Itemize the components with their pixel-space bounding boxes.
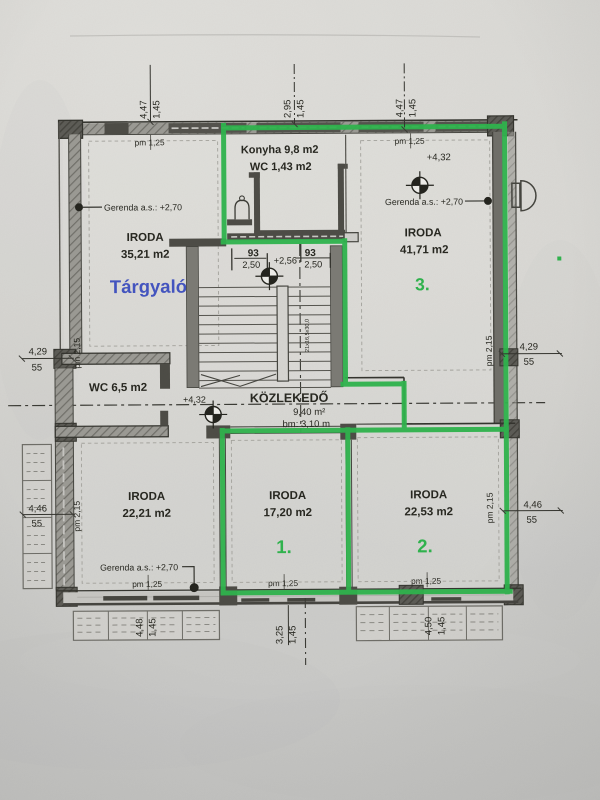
svg-text:3,25: 3,25 [274,626,285,645]
svg-text:55: 55 [32,362,43,373]
svg-text:pm 2,15: pm 2,15 [485,492,495,523]
svg-text:pm 1,25: pm 1,25 [268,578,298,588]
svg-text:WC 6,5 m2: WC 6,5 m2 [89,382,147,394]
svg-text:pm 1,25: pm 1,25 [132,579,162,589]
svg-text:41,71 m2: 41,71 m2 [400,244,449,256]
svg-text:Gerenda a.s.: +2,70: Gerenda a.s.: +2,70 [385,197,463,207]
svg-text:93: 93 [305,248,317,259]
svg-text:IRODA: IRODA [405,227,442,239]
svg-text:IRODA: IRODA [127,232,164,244]
svg-text:55: 55 [32,518,43,529]
svg-text:4,46: 4,46 [28,503,47,514]
svg-text:Gerenda a.s.: +2,70: Gerenda a.s.: +2,70 [100,562,178,572]
svg-text:WC 1,43 m2: WC 1,43 m2 [250,161,312,173]
svg-text:2,50: 2,50 [304,259,322,269]
svg-text:+4,32: +4,32 [183,395,206,405]
svg-text:Tárgyaló: Tárgyaló [110,276,187,297]
svg-text:pm 2,15: pm 2,15 [484,335,494,366]
svg-text:4,46: 4,46 [523,500,542,511]
svg-text:IRODA: IRODA [128,491,165,503]
svg-text:1.: 1. [276,536,292,557]
svg-text:4,47: 4,47 [138,100,149,119]
svg-text:pm 2,15: pm 2,15 [72,501,82,532]
svg-text:2.: 2. [417,535,433,556]
svg-text:KÖZLEKEDŐ: KÖZLEKEDŐ [250,390,329,405]
svg-text:4,50: 4,50 [423,617,434,636]
svg-text:Gerenda a.s.: +2,70: Gerenda a.s.: +2,70 [104,202,182,212]
svg-text:4,47: 4,47 [394,99,405,118]
svg-text:22,21 m2: 22,21 m2 [122,508,171,520]
svg-text:93: 93 [248,248,260,259]
svg-text:1,45: 1,45 [407,99,418,118]
svg-text:1,45: 1,45 [287,626,298,645]
svg-text:1,45: 1,45 [436,617,447,636]
svg-text:IRODA: IRODA [410,489,447,501]
svg-text:2,95: 2,95 [282,100,293,119]
svg-text:55: 55 [526,515,537,526]
svg-text:Konyha 9,8 m2: Konyha 9,8 m2 [241,144,319,156]
svg-text:4,48: 4,48 [134,618,145,637]
svg-text:+2,56: +2,56 [274,256,297,266]
svg-text:4,29: 4,29 [520,342,539,353]
svg-text:1,45: 1,45 [147,618,158,637]
svg-text:35,21 m2: 35,21 m2 [121,249,170,261]
svg-text:21x16,5x30,0: 21x16,5x30,0 [305,319,311,352]
svg-text:22,53 m2: 22,53 m2 [404,506,453,518]
svg-text:3.: 3. [415,274,430,294]
svg-text:2,50: 2,50 [242,260,260,270]
svg-text:4,29: 4,29 [29,346,48,357]
svg-text:pm 1,25: pm 1,25 [135,137,165,147]
svg-text:9,40 m²: 9,40 m² [293,407,325,418]
svg-text:IRODA: IRODA [269,490,306,502]
svg-text:pm 2,15: pm 2,15 [72,338,82,369]
svg-text:1,45: 1,45 [151,100,162,119]
svg-text:pm 1,25: pm 1,25 [395,136,425,146]
svg-text:+4,32: +4,32 [427,152,451,163]
svg-text:17,20 m2: 17,20 m2 [263,507,312,519]
svg-text:55: 55 [524,357,535,368]
svg-text:1,45: 1,45 [295,99,306,118]
